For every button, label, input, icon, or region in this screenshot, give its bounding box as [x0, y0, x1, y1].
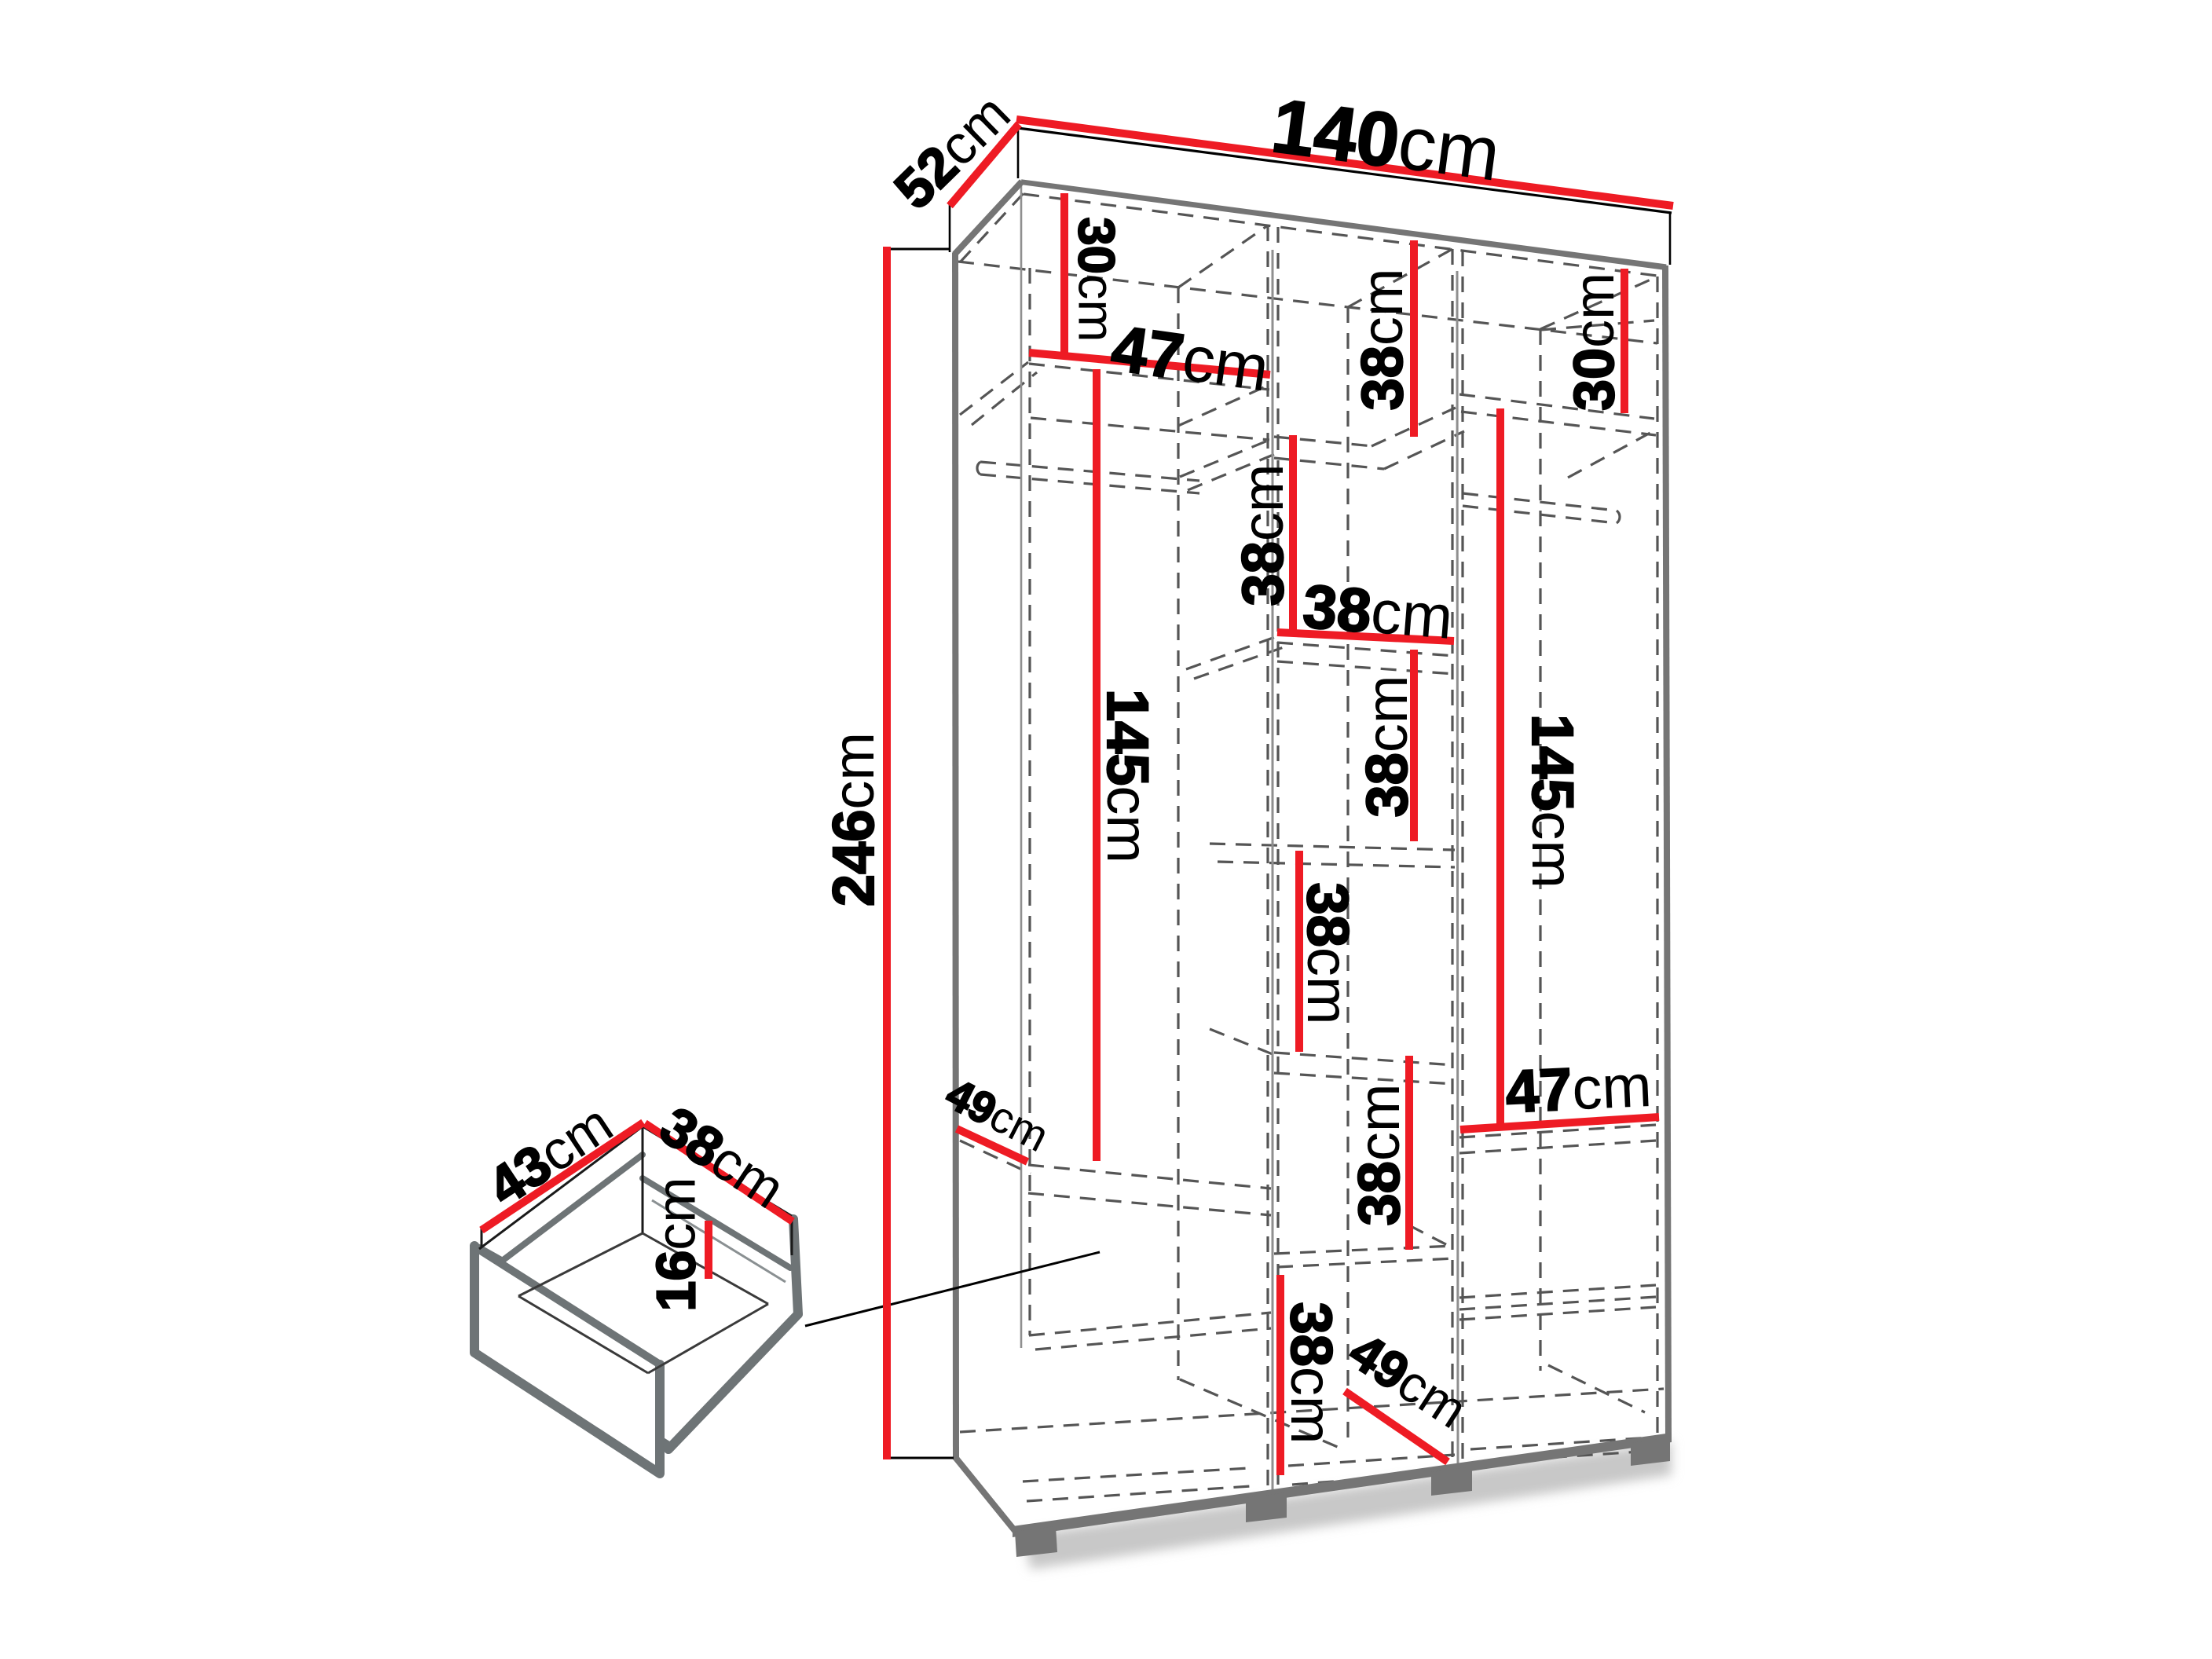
- svg-text:30cm: 30cm: [1563, 273, 1626, 411]
- svg-text:16cm: 16cm: [646, 1177, 707, 1311]
- svg-text:38cm: 38cm: [1279, 1302, 1344, 1445]
- svg-text:38cm: 38cm: [1354, 676, 1419, 818]
- svg-text:38cm: 38cm: [1230, 464, 1295, 606]
- svg-text:246cm: 246cm: [821, 732, 886, 906]
- svg-text:38cm: 38cm: [1346, 1084, 1412, 1226]
- svg-text:38cm: 38cm: [1350, 269, 1415, 411]
- svg-text:47cm: 47cm: [1504, 1053, 1653, 1126]
- svg-text:145cm: 145cm: [1520, 714, 1585, 888]
- svg-text:38cm: 38cm: [1295, 883, 1361, 1025]
- svg-text:38cm: 38cm: [1301, 571, 1456, 652]
- svg-text:145cm: 145cm: [1095, 689, 1160, 863]
